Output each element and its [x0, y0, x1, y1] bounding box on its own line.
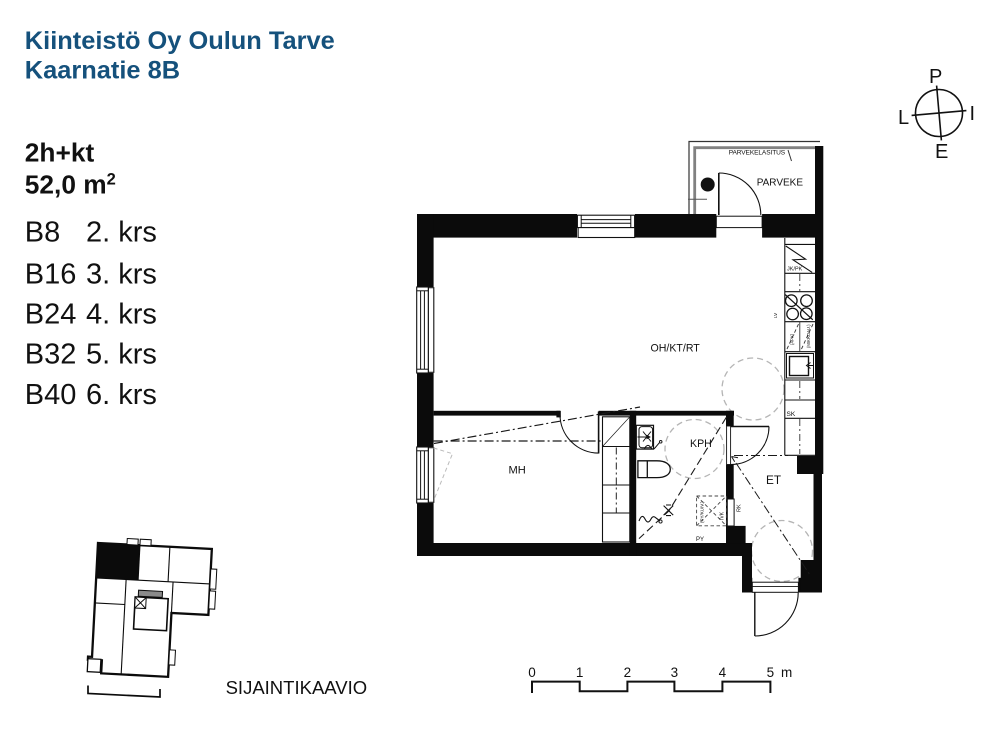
svg-text:IVK: IVK — [720, 511, 726, 520]
svg-text:RK: RK — [737, 504, 743, 512]
svg-text:4. krs: 4. krs — [86, 299, 157, 331]
svg-text:B8: B8 — [25, 216, 60, 248]
svg-text:MH: MH — [509, 464, 526, 476]
svg-text:Kaarnatie 8B: Kaarnatie 8B — [25, 57, 180, 85]
svg-text:LV: LV — [773, 313, 778, 318]
svg-text:2. krs: 2. krs — [86, 216, 157, 248]
svg-text:0: 0 — [528, 665, 536, 680]
svg-text:OH/KT/RT: OH/KT/RT — [651, 343, 701, 355]
svg-text:B16: B16 — [25, 259, 77, 291]
svg-text:2: 2 — [624, 665, 632, 680]
svg-text:(PY/KUIV.): (PY/KUIV.) — [700, 501, 705, 523]
svg-text:PY: PY — [696, 537, 704, 543]
svg-text:KPH: KPH — [690, 438, 712, 450]
svg-text:L: L — [898, 107, 909, 129]
svg-text:ET: ET — [766, 473, 781, 487]
svg-text:B32: B32 — [25, 339, 77, 371]
svg-text:PARVEKE: PARVEKE — [757, 177, 804, 188]
svg-text:3: 3 — [671, 665, 679, 680]
svg-text:SK: SK — [787, 411, 796, 418]
svg-text:JK/PK: JK/PK — [787, 267, 803, 273]
svg-text:52,0 m2: 52,0 m2 — [25, 170, 116, 200]
svg-text:I: I — [970, 103, 976, 125]
svg-text:2h+kt: 2h+kt — [25, 138, 95, 168]
svg-text:1: 1 — [576, 665, 584, 680]
svg-text:5: 5 — [767, 665, 775, 680]
svg-text:PARVEKELASITUS: PARVEKELASITUS — [729, 150, 786, 157]
svg-text:Kiinteistö Oy Oulun Tarve: Kiinteistö Oy Oulun Tarve — [25, 27, 335, 55]
svg-text:(APK): (APK) — [790, 333, 795, 345]
svg-text:SIJAINTIKAAVIO: SIJAINTIKAAVIO — [226, 677, 368, 698]
svg-text:E: E — [935, 141, 948, 163]
svg-text:3. krs: 3. krs — [86, 259, 157, 291]
svg-text:B24: B24 — [25, 299, 77, 331]
svg-text:6. krs: 6. krs — [86, 379, 157, 411]
svg-text:5. krs: 5. krs — [86, 339, 157, 371]
svg-text:4: 4 — [719, 665, 727, 680]
svg-text:m: m — [781, 665, 792, 680]
svg-text:(MIKROAU.): (MIKROAU.) — [806, 324, 811, 348]
svg-text:P: P — [929, 66, 942, 88]
svg-text:B40: B40 — [25, 379, 77, 411]
